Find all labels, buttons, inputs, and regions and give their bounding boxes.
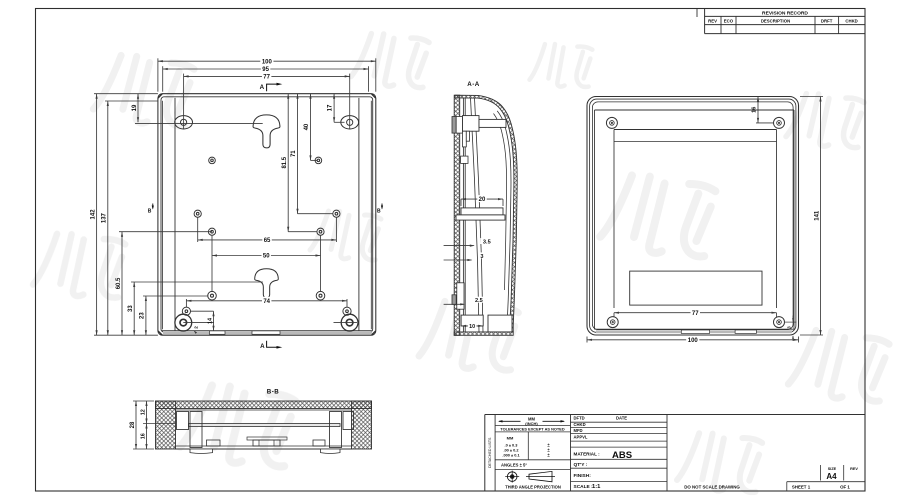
svg-text:3: 3	[480, 254, 483, 260]
svg-text:CHKD: CHKD	[574, 422, 586, 427]
svg-text:17: 17	[328, 104, 334, 111]
svg-text:77: 77	[263, 75, 270, 81]
svg-text:MFD: MFD	[574, 428, 583, 433]
svg-text:DFTD: DFTD	[574, 416, 585, 421]
svg-text:65: 65	[264, 238, 271, 244]
svg-text:OF 1: OF 1	[840, 484, 850, 489]
svg-text:DRFT: DRFT	[821, 19, 833, 24]
svg-text:REV: REV	[850, 467, 858, 471]
svg-text:A: A	[260, 343, 265, 350]
svg-text:12: 12	[140, 409, 146, 415]
svg-text:DATE: DATE	[616, 416, 627, 421]
svg-text:MM: MM	[507, 435, 514, 440]
svg-text:14: 14	[207, 318, 213, 324]
svg-text:16: 16	[752, 107, 758, 113]
svg-text:SIZE: SIZE	[828, 467, 837, 471]
svg-text:137: 137	[102, 212, 108, 223]
svg-text:ANGLES ± 5°: ANGLES ± 5°	[501, 462, 527, 467]
svg-text:A: A	[260, 84, 265, 91]
svg-text:CHKD: CHKD	[845, 19, 857, 24]
svg-text:DESCRIPTION: DESCRIPTION	[761, 19, 790, 24]
svg-text:95: 95	[262, 67, 269, 73]
svg-text:74: 74	[263, 299, 270, 305]
svg-text:50: 50	[263, 254, 270, 260]
svg-text:77: 77	[692, 311, 699, 317]
svg-text:2.5: 2.5	[475, 298, 483, 304]
svg-text:10: 10	[469, 324, 475, 330]
svg-text:28: 28	[130, 421, 136, 428]
svg-text:A-A: A-A	[467, 81, 480, 88]
svg-text:QT'Y :: QT'Y :	[574, 462, 588, 468]
svg-text:141: 141	[814, 210, 820, 221]
svg-text:100: 100	[262, 59, 273, 65]
svg-text:3.5: 3.5	[483, 239, 491, 245]
svg-text:DETACHED LISTS: DETACHED LISTS	[488, 437, 492, 468]
svg-text:DO NOT SCALE DRAWING: DO NOT SCALE DRAWING	[684, 484, 740, 489]
svg-text:SHEET 1: SHEET 1	[792, 484, 811, 489]
svg-text:REVISION RECORD: REVISION RECORD	[762, 11, 808, 17]
svg-text:TOLERANCES EXCEPT AS NOTED: TOLERANCES EXCEPT AS NOTED	[500, 426, 565, 431]
svg-text:B: B	[377, 209, 381, 215]
svg-text:ECO: ECO	[724, 19, 734, 24]
svg-text:MATERIAL :: MATERIAL :	[574, 451, 601, 456]
svg-text:THIRD ANGLE PROJECTION: THIRD ANGLE PROJECTION	[505, 484, 561, 489]
svg-text:APPVL: APPVL	[574, 435, 588, 440]
svg-text:19: 19	[132, 104, 138, 111]
svg-text:60.5: 60.5	[116, 277, 122, 289]
svg-text:2: 2	[193, 326, 198, 329]
svg-text:SCALE :: SCALE :	[574, 484, 594, 490]
svg-text:B-B: B-B	[267, 389, 280, 396]
svg-text:142: 142	[90, 209, 96, 220]
svg-text:FINISH:: FINISH:	[574, 473, 592, 479]
svg-text:ABS: ABS	[612, 450, 632, 461]
svg-text:20: 20	[479, 197, 486, 203]
svg-text:40: 40	[304, 123, 310, 130]
svg-text:.000 ± 0.1: .000 ± 0.1	[502, 452, 520, 457]
svg-text:100: 100	[688, 338, 699, 344]
svg-text:16: 16	[140, 433, 146, 439]
svg-text:A4: A4	[826, 472, 837, 481]
svg-text:(INCH): (INCH)	[525, 421, 538, 426]
svg-text:71: 71	[291, 150, 297, 157]
svg-text:B: B	[148, 209, 152, 215]
svg-text:23: 23	[140, 312, 146, 319]
svg-text:REV: REV	[708, 19, 717, 24]
svg-text:81.5: 81.5	[282, 156, 288, 168]
svg-text:1:1: 1:1	[592, 484, 601, 490]
svg-text:33: 33	[128, 305, 134, 312]
